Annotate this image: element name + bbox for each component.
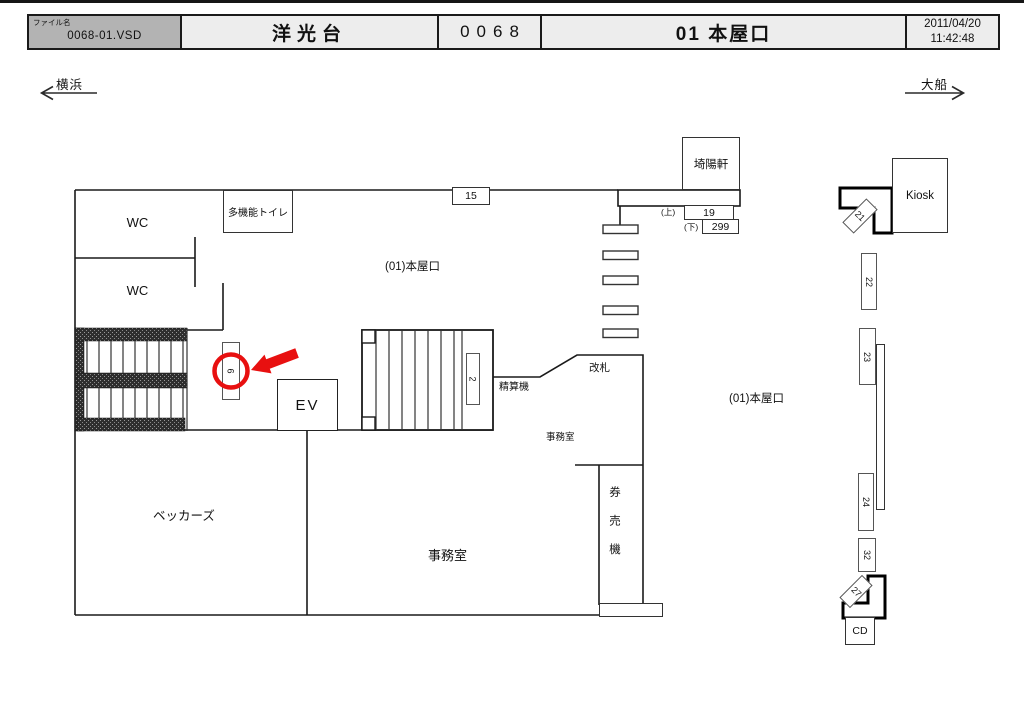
file-name-label: ファイル名 — [33, 17, 71, 28]
platform-wall-strip — [876, 344, 885, 510]
wc-upper-label: WC — [95, 215, 180, 230]
kiosk-box: Kiosk — [892, 158, 948, 233]
office-small-label: 事務室 — [546, 429, 575, 443]
elevator-box: EV — [277, 379, 338, 431]
ticket-gate-machines — [603, 225, 638, 338]
title-block: ファイル名 0068-01.VSD 洋光台 0068 01 本屋口 2011/0… — [27, 14, 1000, 50]
gate-title-cell: 01 本屋口 — [542, 16, 907, 48]
station-name-cell: 洋光台 — [182, 16, 439, 48]
honyaguchi-right-label: (01)本屋口 — [729, 390, 784, 406]
honyaguchi-center-label: (01)本屋口 — [385, 258, 440, 274]
sign-15: 15 — [452, 187, 490, 205]
sign-32: 32 — [858, 538, 876, 572]
datetime-cell: 2011/04/20 11:42:48 — [907, 16, 998, 48]
beckers-label: ベッカーズ — [153, 505, 215, 524]
station-floorplan-page: ファイル名 0068-01.VSD 洋光台 0068 01 本屋口 2011/0… — [0, 0, 1024, 724]
sign-23: 23 — [859, 328, 876, 385]
cd-machine-box: CD — [845, 617, 875, 645]
page-top-border — [0, 0, 1024, 3]
ticket-machine-label: 券売機 — [606, 486, 622, 618]
kiyoken-counter-bar — [618, 190, 740, 206]
kiyoken-shop-box: 埼陽軒 — [682, 137, 740, 190]
fare-adjustment-label: 精算機 — [499, 378, 529, 393]
sign-2: 2 — [466, 353, 480, 405]
left-direction-label: 横浜 — [56, 74, 83, 93]
wc-lower-label: WC — [95, 283, 180, 298]
multi-function-toilet-box: 多機能トイレ — [223, 190, 293, 233]
down-annotation: (下) — [684, 221, 698, 233]
left-staircase — [75, 328, 187, 431]
sign-6: 6 — [222, 342, 240, 400]
up-annotation: (上) — [661, 206, 675, 218]
right-direction-label: 大船 — [921, 74, 948, 93]
sign-299: 299 — [702, 219, 739, 234]
sign-22: 22 — [861, 253, 877, 310]
sign-24: 24 — [858, 473, 874, 531]
station-number-cell: 0068 — [439, 16, 542, 48]
file-name-cell: ファイル名 0068-01.VSD — [29, 16, 182, 48]
ticket-gate-label: 改札 — [589, 360, 610, 375]
office-large-label: 事務室 — [428, 545, 467, 564]
file-name-value: 0068-01.VSD — [67, 30, 142, 42]
sign-19: 19 — [684, 205, 734, 220]
time-text: 11:42:48 — [931, 32, 975, 47]
date-text: 2011/04/20 — [924, 17, 981, 32]
